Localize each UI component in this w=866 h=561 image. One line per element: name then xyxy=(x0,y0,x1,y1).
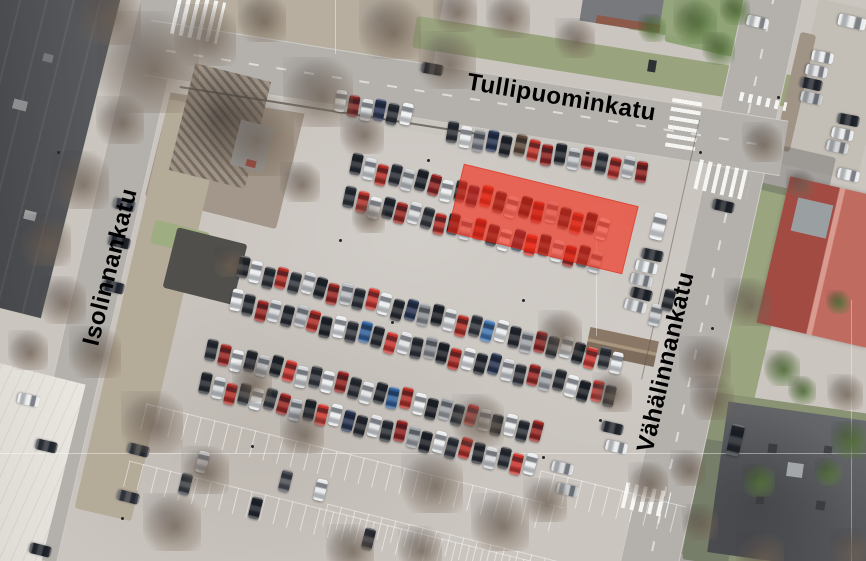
parked-car xyxy=(204,338,219,362)
light-pole xyxy=(121,517,124,520)
green-tree xyxy=(742,464,775,497)
light-pole xyxy=(251,445,254,448)
parked-car xyxy=(349,152,364,176)
parked-car xyxy=(379,420,394,444)
parked-car xyxy=(325,282,340,306)
parked-car xyxy=(279,304,295,328)
bare-tree xyxy=(418,31,475,88)
parked-car xyxy=(566,147,581,171)
light-pole xyxy=(777,96,780,99)
light-pole xyxy=(339,239,342,242)
bare-tree xyxy=(181,446,229,494)
bare-tree xyxy=(471,493,528,550)
bare-tree xyxy=(121,391,183,453)
light-pole xyxy=(522,299,525,302)
roof-structure xyxy=(786,462,804,478)
bare-tree xyxy=(433,0,477,32)
parked-car xyxy=(629,272,653,288)
green-tree xyxy=(788,376,817,405)
parked-car xyxy=(198,371,213,395)
parked-car xyxy=(528,419,544,443)
bare-tree xyxy=(340,110,384,154)
bare-tree xyxy=(143,493,200,550)
light-pole xyxy=(699,151,702,154)
green-tree xyxy=(720,0,751,25)
bare-tree xyxy=(786,170,815,199)
light-pole xyxy=(391,321,394,324)
parked-car xyxy=(432,212,447,236)
parked-car xyxy=(320,370,336,394)
bare-tree xyxy=(280,410,324,454)
parked-car xyxy=(439,179,454,203)
bare-tree xyxy=(670,450,705,485)
bare-tree xyxy=(38,276,86,324)
green-tree xyxy=(638,14,667,43)
bare-tree xyxy=(96,96,144,144)
car xyxy=(277,469,293,493)
bare-tree xyxy=(736,531,784,561)
bare-tree xyxy=(724,278,772,326)
car xyxy=(312,478,328,502)
bare-tree xyxy=(486,0,530,38)
car xyxy=(648,211,667,240)
parked-car xyxy=(458,125,473,149)
parked-car xyxy=(294,365,309,389)
bare-tree xyxy=(452,394,505,447)
parked-car xyxy=(318,315,333,339)
bare-tree xyxy=(742,122,782,162)
roof-vent xyxy=(755,495,764,504)
map-line xyxy=(335,0,336,54)
parked-car xyxy=(483,447,499,471)
bare-tree xyxy=(232,362,272,402)
parked-car xyxy=(374,163,390,187)
car xyxy=(600,420,624,436)
bare-tree xyxy=(523,478,567,522)
parked-car xyxy=(385,387,400,411)
bare-tree xyxy=(830,528,866,561)
bare-tree xyxy=(555,18,595,58)
parked-car xyxy=(635,259,659,275)
bare-tree xyxy=(238,0,286,42)
light-pole xyxy=(542,456,545,459)
bare-tree xyxy=(174,4,236,66)
bare-tree xyxy=(628,462,668,502)
parked-car xyxy=(286,271,302,295)
parked-car xyxy=(445,120,459,143)
light-pole xyxy=(599,419,602,422)
bare-tree xyxy=(359,0,421,59)
bare-tree xyxy=(690,376,734,420)
green-tree xyxy=(814,458,843,487)
parked-car xyxy=(512,363,528,387)
bare-tree xyxy=(213,247,244,278)
roof-vent xyxy=(815,500,825,510)
aerial-map-screenshot: Tullipuominkatu Isolinnankatu Vähälinnan… xyxy=(0,0,866,561)
parked-car xyxy=(519,330,535,354)
highlighted-parking-area xyxy=(447,164,638,275)
green-tree xyxy=(831,421,866,458)
bare-tree xyxy=(19,214,72,267)
bare-tree xyxy=(75,0,141,45)
roof-vent xyxy=(767,443,777,453)
car xyxy=(660,288,676,312)
bare-tree xyxy=(827,374,862,409)
bare-tree xyxy=(280,162,320,202)
bare-tree xyxy=(592,372,632,412)
parked-car xyxy=(522,452,538,476)
parked-car xyxy=(634,160,648,183)
parked-car xyxy=(471,130,486,154)
parked-car xyxy=(553,142,568,166)
aerial-map xyxy=(0,0,866,561)
bare-tree xyxy=(682,504,717,539)
green-tree xyxy=(702,32,735,65)
bare-tree xyxy=(401,451,463,513)
bare-tree xyxy=(352,200,385,233)
light-pole xyxy=(711,327,714,330)
bare-tree xyxy=(8,330,48,370)
light-pole xyxy=(427,159,430,162)
bare-tree xyxy=(69,326,122,379)
parked-car xyxy=(539,143,553,166)
bare-tree xyxy=(398,526,442,561)
bare-tree xyxy=(326,524,374,561)
bare-tree xyxy=(538,310,582,354)
green-tree xyxy=(826,290,850,314)
bare-tree xyxy=(51,151,108,208)
